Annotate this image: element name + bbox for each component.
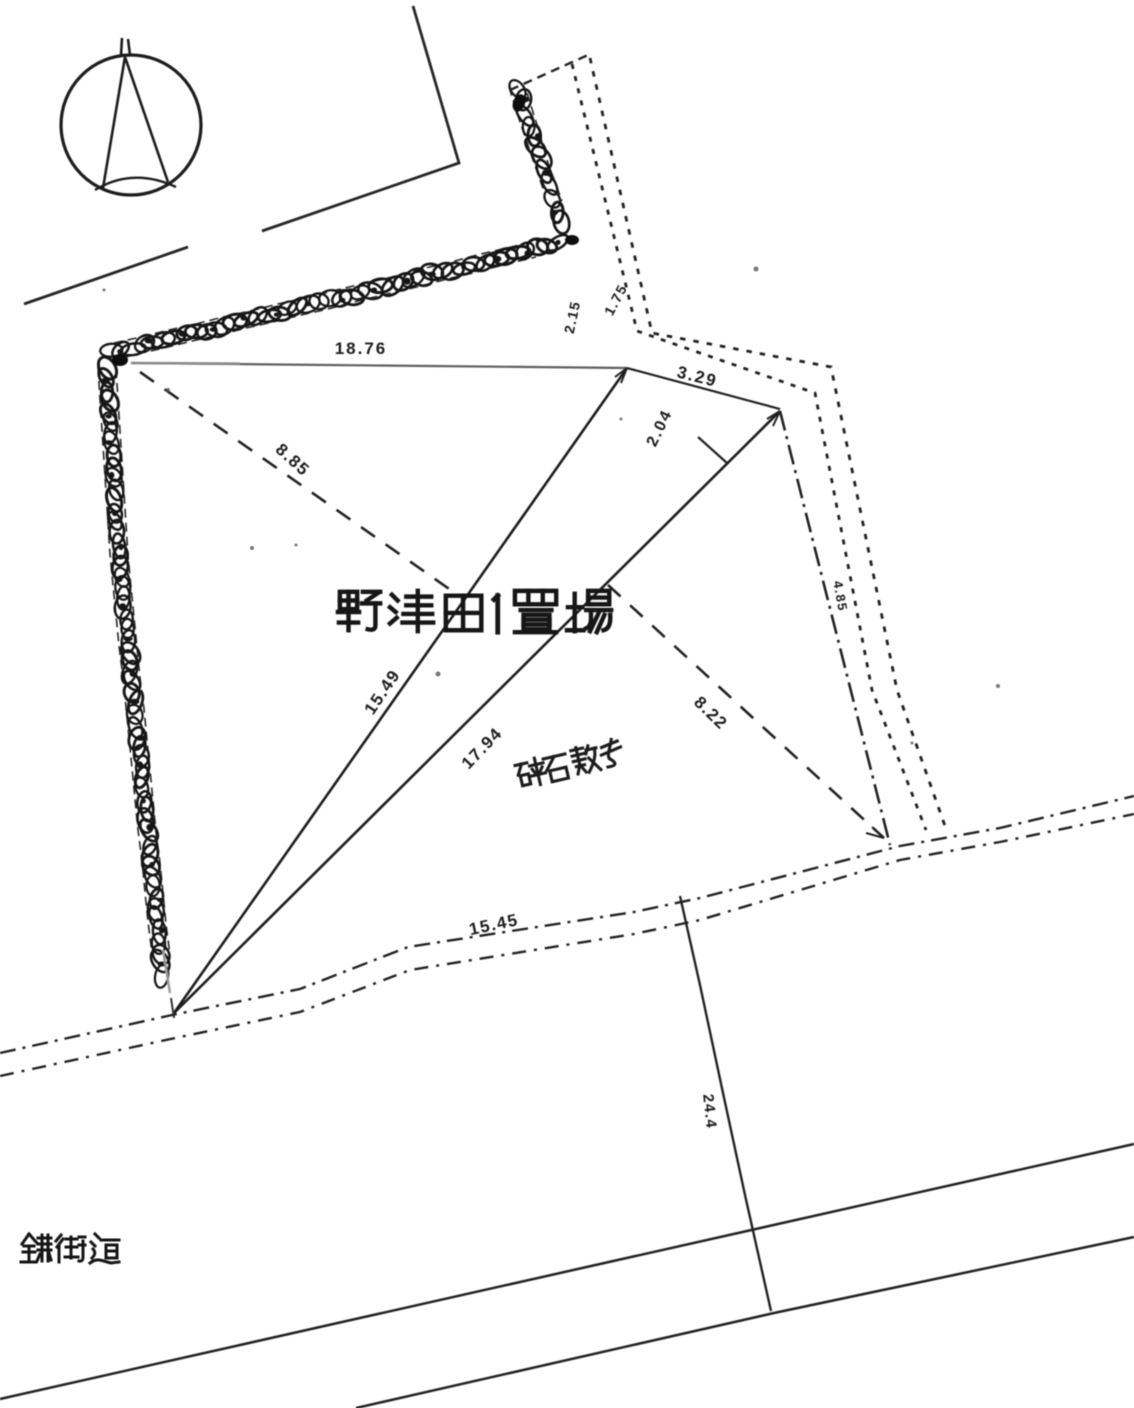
svg-text:18.76: 18.76 [335, 339, 388, 358]
